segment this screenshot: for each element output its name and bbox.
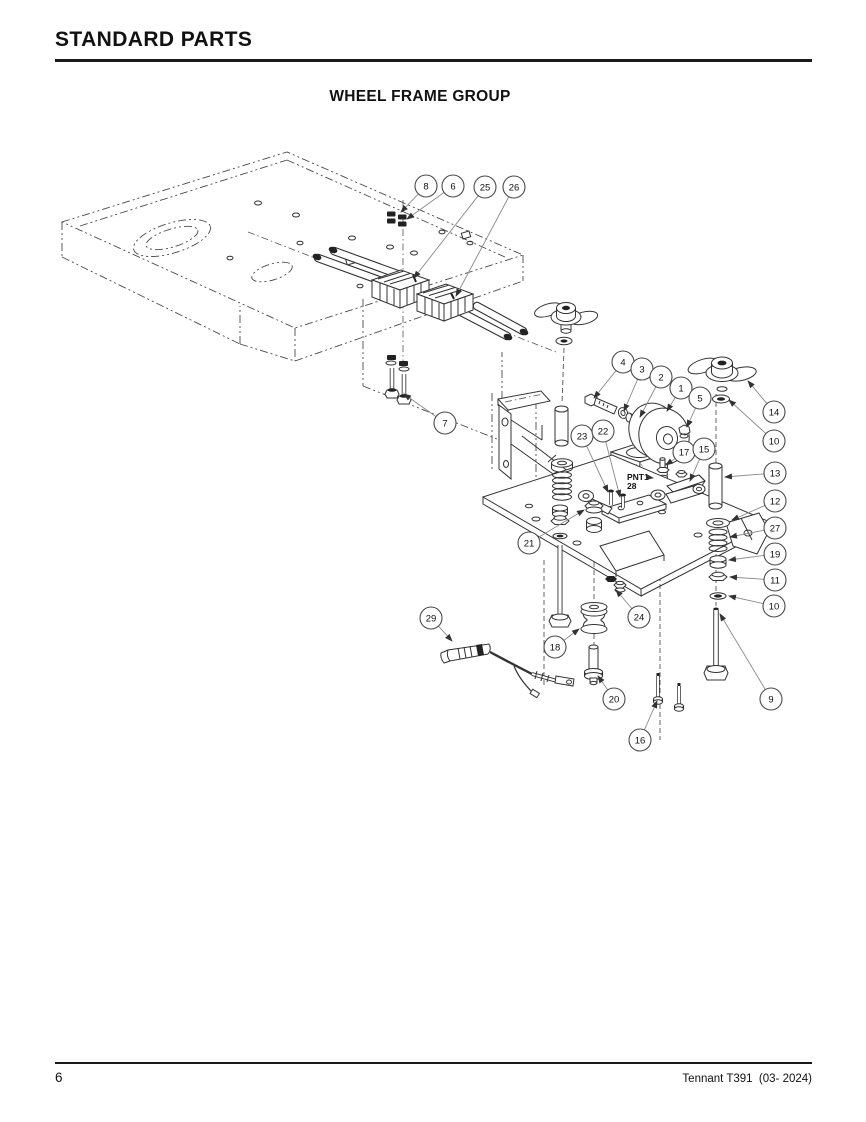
roller-18 bbox=[581, 603, 607, 634]
callout-16: 16 bbox=[629, 701, 657, 751]
screws-16 bbox=[654, 673, 684, 711]
svg-text:24: 24 bbox=[634, 612, 645, 623]
svg-text:9: 9 bbox=[768, 694, 773, 705]
svg-text:11: 11 bbox=[770, 575, 780, 586]
fasteners-8-6 bbox=[387, 212, 407, 227]
callout-5: 5 bbox=[687, 387, 711, 427]
svg-text:22: 22 bbox=[598, 426, 609, 437]
callout-18: 18 bbox=[544, 629, 579, 658]
svg-text:14: 14 bbox=[769, 407, 780, 418]
svg-text:5: 5 bbox=[697, 393, 702, 404]
paint-note-item: 28 bbox=[627, 481, 637, 491]
svg-text:4: 4 bbox=[620, 357, 625, 368]
callout-14: 14 bbox=[748, 381, 785, 423]
callout-9: 9 bbox=[720, 614, 782, 710]
svg-text:1: 1 bbox=[678, 383, 683, 394]
svg-text:7: 7 bbox=[442, 418, 447, 429]
svg-text:23: 23 bbox=[577, 431, 588, 442]
svg-text:8: 8 bbox=[423, 181, 428, 192]
long-bolt-left bbox=[549, 545, 571, 627]
callout-29: 29 bbox=[420, 607, 452, 641]
footer-rule bbox=[55, 1062, 812, 1064]
svg-text:10: 10 bbox=[769, 601, 780, 612]
callout-11: 11 bbox=[730, 569, 786, 591]
svg-text:3: 3 bbox=[639, 364, 644, 375]
callout-20: 20 bbox=[598, 676, 625, 710]
svg-text:18: 18 bbox=[550, 642, 561, 653]
svg-text:21: 21 bbox=[524, 538, 535, 549]
diagram-title: WHEEL FRAME GROUP bbox=[0, 88, 840, 106]
svg-text:16: 16 bbox=[635, 735, 646, 746]
manual-page: STANDARD PARTS WHEEL FRAME GROUP bbox=[0, 0, 866, 1122]
svg-text:2: 2 bbox=[658, 372, 663, 383]
callout-24: 24 bbox=[616, 590, 650, 628]
svg-text:15: 15 bbox=[699, 444, 710, 455]
footer-page-number: 6 bbox=[55, 1070, 63, 1085]
cable-assembly-rear bbox=[417, 284, 529, 341]
footer-document-id: Tennant T391 (03- 2024) bbox=[682, 1073, 812, 1085]
svg-text:27: 27 bbox=[770, 523, 781, 534]
callout-7: 7 bbox=[404, 394, 456, 434]
svg-text:25: 25 bbox=[480, 182, 491, 193]
svg-text:13: 13 bbox=[770, 468, 781, 479]
svg-text:26: 26 bbox=[509, 182, 520, 193]
svg-text:10: 10 bbox=[769, 436, 780, 447]
spacer-tube-left bbox=[555, 406, 568, 446]
callout-13: 13 bbox=[725, 462, 786, 484]
svg-text:19: 19 bbox=[770, 549, 781, 560]
svg-text:12: 12 bbox=[770, 496, 781, 507]
svg-text:29: 29 bbox=[426, 613, 437, 624]
callout-8: 8 bbox=[401, 175, 437, 212]
exploded-parts-diagram: PNT1 28 86252674321514102322171513122719… bbox=[0, 130, 866, 790]
long-bolt-9 bbox=[704, 608, 728, 681]
callout-4: 4 bbox=[594, 351, 634, 398]
callout-10: 10 bbox=[729, 595, 785, 617]
page-header-title: STANDARD PARTS bbox=[55, 28, 252, 52]
header-rule bbox=[55, 59, 812, 62]
wing-knob-left bbox=[533, 300, 599, 345]
svg-text:17: 17 bbox=[679, 447, 690, 458]
svg-text:20: 20 bbox=[609, 694, 620, 705]
svg-text:6: 6 bbox=[450, 181, 455, 192]
exploded-diagram-container: PNT1 28 86252674321514102322171513122719… bbox=[0, 130, 866, 790]
spacer-13 bbox=[709, 463, 722, 509]
